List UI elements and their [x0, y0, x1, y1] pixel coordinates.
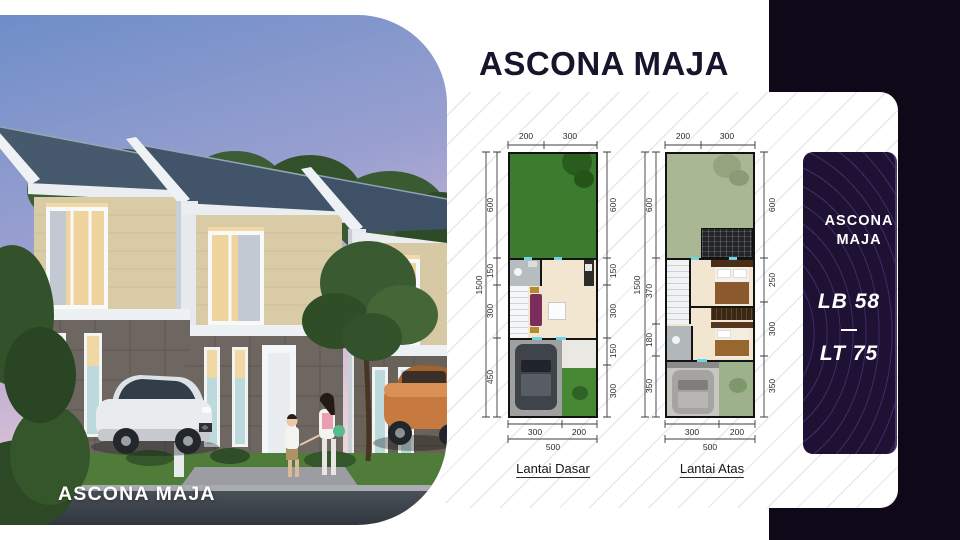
project-info-card: ASCONA MAJA LB 58 LT 75	[803, 152, 897, 454]
dimension-label: 180	[644, 333, 654, 347]
page-title: ASCONA MAJA	[479, 45, 729, 83]
dimension-label: 600	[485, 198, 495, 212]
info-card-title: ASCONA MAJA	[803, 212, 915, 250]
land-area-value: LT 75	[803, 342, 895, 366]
dimension-label: 250	[767, 273, 777, 287]
house-photo-illustration	[0, 15, 447, 525]
dimension-label: 370	[644, 284, 654, 298]
dimension-label: 200	[572, 427, 586, 437]
plan-label-lantai-atas: Lantai Atas	[680, 461, 744, 478]
dimension-label: 150	[608, 264, 618, 278]
dimension-label: 200	[676, 131, 690, 141]
dimension-label: 300	[608, 384, 618, 398]
house-render-photo: ASCONA MAJA	[0, 15, 447, 525]
dimension-label: 300	[685, 427, 699, 437]
dimension-label: 600	[767, 198, 777, 212]
dimension-label: 1500	[474, 276, 484, 295]
dimension-label: 300	[608, 304, 618, 318]
dimension-label: 1500	[632, 276, 642, 295]
dimension-label: 200	[519, 131, 533, 141]
dimension-label: 150	[608, 344, 618, 358]
dimension-label: 300	[720, 131, 734, 141]
dimension-label: 200	[730, 427, 744, 437]
dimension-label: 600	[644, 198, 654, 212]
dimension-label: 300	[563, 131, 577, 141]
dimension-label: 150	[485, 264, 495, 278]
dimension-label: 500	[546, 442, 560, 452]
dimension-label: 300	[528, 427, 542, 437]
dimension-label: 450	[485, 370, 495, 384]
dimension-label: 300	[485, 304, 495, 318]
dimension-label: 500	[703, 442, 717, 452]
dimension-lines-lantai-dasar	[470, 130, 620, 450]
dimension-label: 600	[608, 198, 618, 212]
photo-caption: ASCONA MAJA	[58, 483, 216, 506]
divider-line	[841, 329, 857, 331]
dimension-label: 350	[644, 379, 654, 393]
dimension-label: 350	[767, 379, 777, 393]
building-area-value: LB 58	[803, 290, 895, 314]
plan-label-lantai-dasar: Lantai Dasar	[516, 461, 590, 478]
dimension-label: 300	[767, 322, 777, 336]
